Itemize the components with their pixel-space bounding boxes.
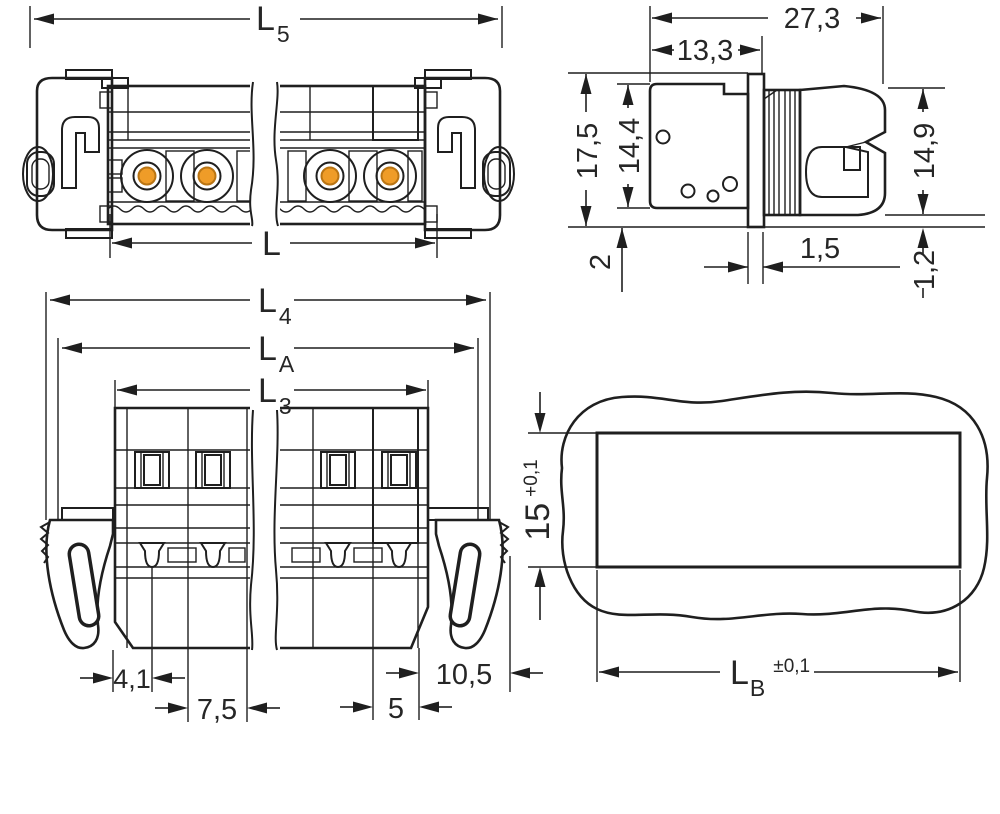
dim-1-2-label: 1,2 [909,250,941,290]
dim-10-5: 10,5 [386,659,543,691]
dim-L-label: L [262,225,281,263]
dim-2-label: 2 [585,254,617,270]
dim-14-9-label: 14,9 [909,123,941,179]
mounting-shoulder-right [428,508,488,520]
dim-7-5-label: 7,5 [197,694,237,726]
dim-14-4: 14,4 [614,85,646,207]
panel-flange [748,74,764,227]
dim-1-5-label: 1,5 [800,233,840,265]
end-cap-latch-right [425,70,514,238]
dim-10-5-label: 10,5 [436,659,492,691]
housing-hole [657,131,670,144]
connector-dimension-drawing: L5 L [0,0,1000,814]
cap-pill-inner [32,159,49,189]
dim-15-label: 15+0,1 [519,459,557,540]
housing-hole [708,191,719,202]
dim-14-4-label: 14,4 [614,118,646,174]
housing-hole [682,185,695,198]
socket-contact-1 [121,150,173,202]
pin-contact-3 [321,452,355,488]
end-cap-latch [23,70,112,238]
dim-7-5: 7,5 [155,694,280,726]
view-panel-cutout: 15+0,1 LB±0,1 [519,392,988,701]
dim-5: 5 [340,693,452,725]
socket-contact-2 [181,150,233,202]
dim-27-3-label: 27,3 [784,3,840,35]
dim-14-9: 14,9 [909,89,941,214]
dim-17-5-label: 17,5 [572,123,604,179]
dim-4-1-label: 4,1 [113,664,151,694]
dim-15: 15+0,1 [519,392,600,620]
dim-1-5: 1,5 [704,232,900,284]
dim-L4-label: L4 [258,282,292,329]
view-top: L4 LA L3 4,1 [41,282,543,726]
lever-slot [79,554,89,616]
pin-contact-1 [135,452,169,488]
locking-lever-right [436,520,508,648]
dim-5-label: 5 [388,693,404,725]
coding-column-teal [373,408,418,543]
dim-13-3: 13,3 [652,35,762,74]
dim-LA-label: LA [258,330,295,377]
bottom-extension-lines [113,556,510,722]
drawing-canvas: L5 L [0,0,1000,814]
dim-4-1: 4,1 [80,664,185,694]
dim-2: 2 [585,228,628,292]
pin-contact-2 [196,452,230,488]
dim-L5: L5 [30,0,502,48]
cutout-rectangle [597,433,960,567]
break-gap [250,76,280,232]
dim-13-3-label: 13,3 [677,35,733,67]
view-side-elevation: L5 L [23,0,514,263]
latch-hook [62,117,99,188]
housing-hole [723,177,737,191]
pin-contact-4 [382,452,416,488]
mounting-shoulder-left [62,508,113,520]
break-gap-top-view [250,404,280,652]
lever-slot [460,554,470,616]
dim-L5-label: L5 [256,0,290,47]
view-end-profile: 27,3 13,3 17,5 14,4 14,9 [568,3,985,298]
dim-1-2: 1,2 [909,228,941,298]
dim-LB: LB±0,1 [597,570,960,701]
ribbed-section [764,90,800,215]
locking-lever-left [41,520,113,648]
latch-cavity [806,147,868,197]
socket-contact-3 [304,150,356,202]
dim-LB-label: LB±0,1 [730,654,810,701]
dim-17-5: 17,5 [572,74,604,226]
